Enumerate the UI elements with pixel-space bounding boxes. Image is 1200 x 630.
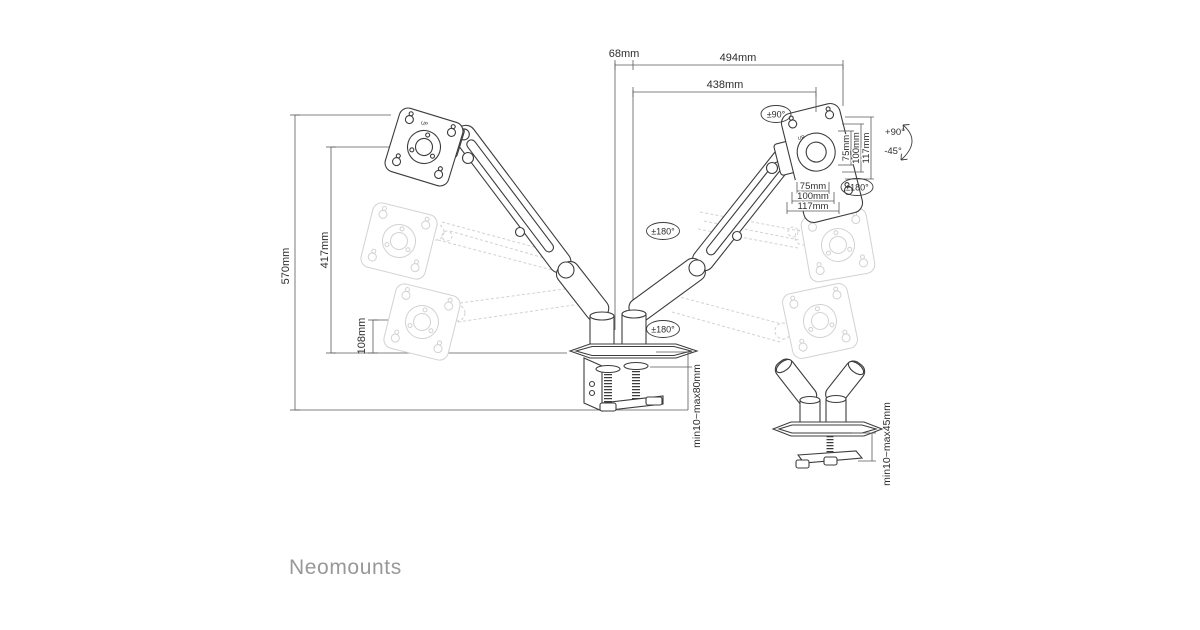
rotate-180-base-badge: ±180° bbox=[647, 321, 680, 338]
dual-monitor-arm: UP UP bbox=[383, 101, 882, 468]
dim-label-438mm: 438mm bbox=[707, 79, 744, 91]
left-elbow-joint bbox=[558, 262, 574, 278]
cable-clip bbox=[733, 232, 742, 241]
tilt-annotation: +90° -45° bbox=[884, 125, 912, 161]
ghost-vesa-plate bbox=[382, 282, 462, 362]
dim-label-494mm: 494mm bbox=[720, 52, 757, 64]
product-dimension-diagram: UP UP bbox=[0, 0, 1200, 630]
brand-logo: Neomounts bbox=[289, 556, 402, 580]
rotate-180-elbow-badge: ±180° bbox=[647, 223, 680, 240]
right-elbow-joint bbox=[689, 260, 705, 276]
rotation-annotations: ±90° ±180° ±180° ±180° +90° -45° bbox=[647, 106, 913, 338]
left-vesa-plate: UP bbox=[383, 106, 474, 188]
desk-plate bbox=[570, 344, 697, 358]
svg-text:±180°: ±180° bbox=[651, 325, 675, 335]
dim-108mm bbox=[368, 320, 378, 353]
dim-label-grommet-range: min10~max45mm bbox=[881, 402, 893, 486]
cable-clip bbox=[516, 228, 525, 237]
grommet-mount bbox=[772, 356, 882, 468]
dim-label-108mm: 108mm bbox=[356, 318, 368, 355]
left-base-post bbox=[590, 316, 614, 348]
dim-label-vesa-v-117: 117mm bbox=[861, 132, 872, 163]
dim-label-417mm: 417mm bbox=[319, 232, 331, 269]
dim-label-clamp-range: min10~max80mm bbox=[691, 364, 703, 448]
clamp-screw bbox=[624, 363, 648, 400]
svg-text:±180°: ±180° bbox=[845, 183, 869, 193]
right-base-post bbox=[622, 314, 646, 348]
ghost-vesa-plate bbox=[359, 201, 439, 281]
ghost-vesa-plate bbox=[781, 282, 859, 360]
dim-label-68mm: 68mm bbox=[609, 48, 640, 60]
ghost-positions bbox=[359, 201, 876, 362]
left-arm-upper bbox=[450, 121, 575, 276]
svg-text:±90°: ±90° bbox=[767, 110, 786, 120]
technical-drawing: UP UP bbox=[0, 0, 1200, 630]
dim-label-vesa-h-117: 117mm bbox=[798, 201, 829, 212]
dim-label-570mm: 570mm bbox=[280, 248, 292, 285]
grommet-plate bbox=[773, 422, 882, 436]
tilt-down-label: -45° bbox=[884, 146, 902, 157]
desk-clamp bbox=[584, 358, 663, 411]
tilt-up-label: +90° bbox=[885, 127, 905, 138]
svg-text:±180°: ±180° bbox=[651, 227, 675, 237]
